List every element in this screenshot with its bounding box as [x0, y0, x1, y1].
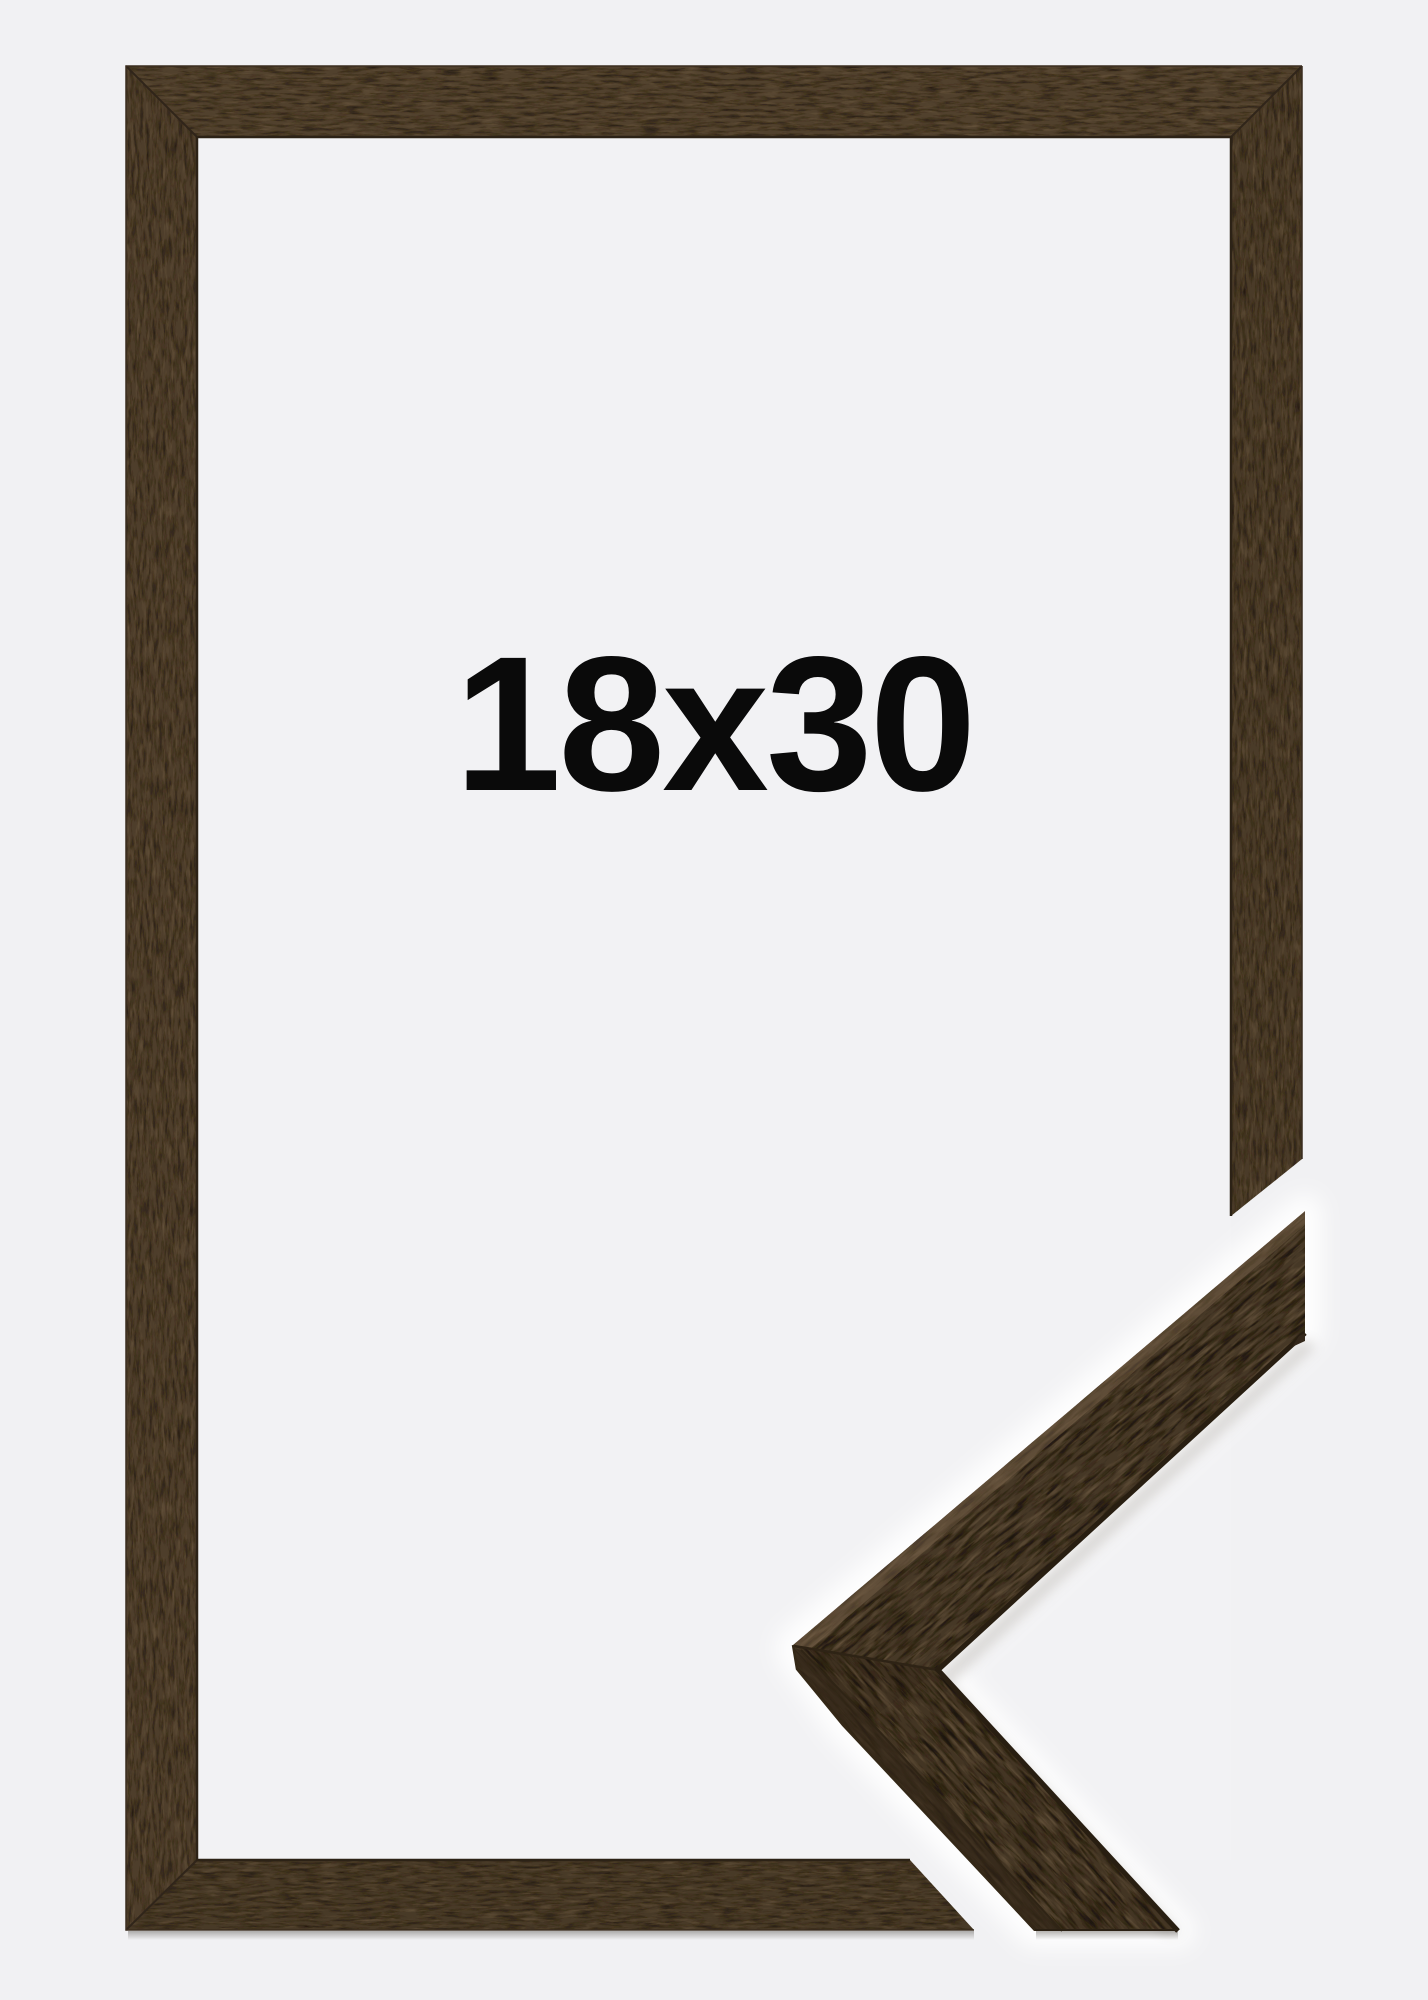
svg-text:18x30: 18x30	[455, 616, 974, 831]
